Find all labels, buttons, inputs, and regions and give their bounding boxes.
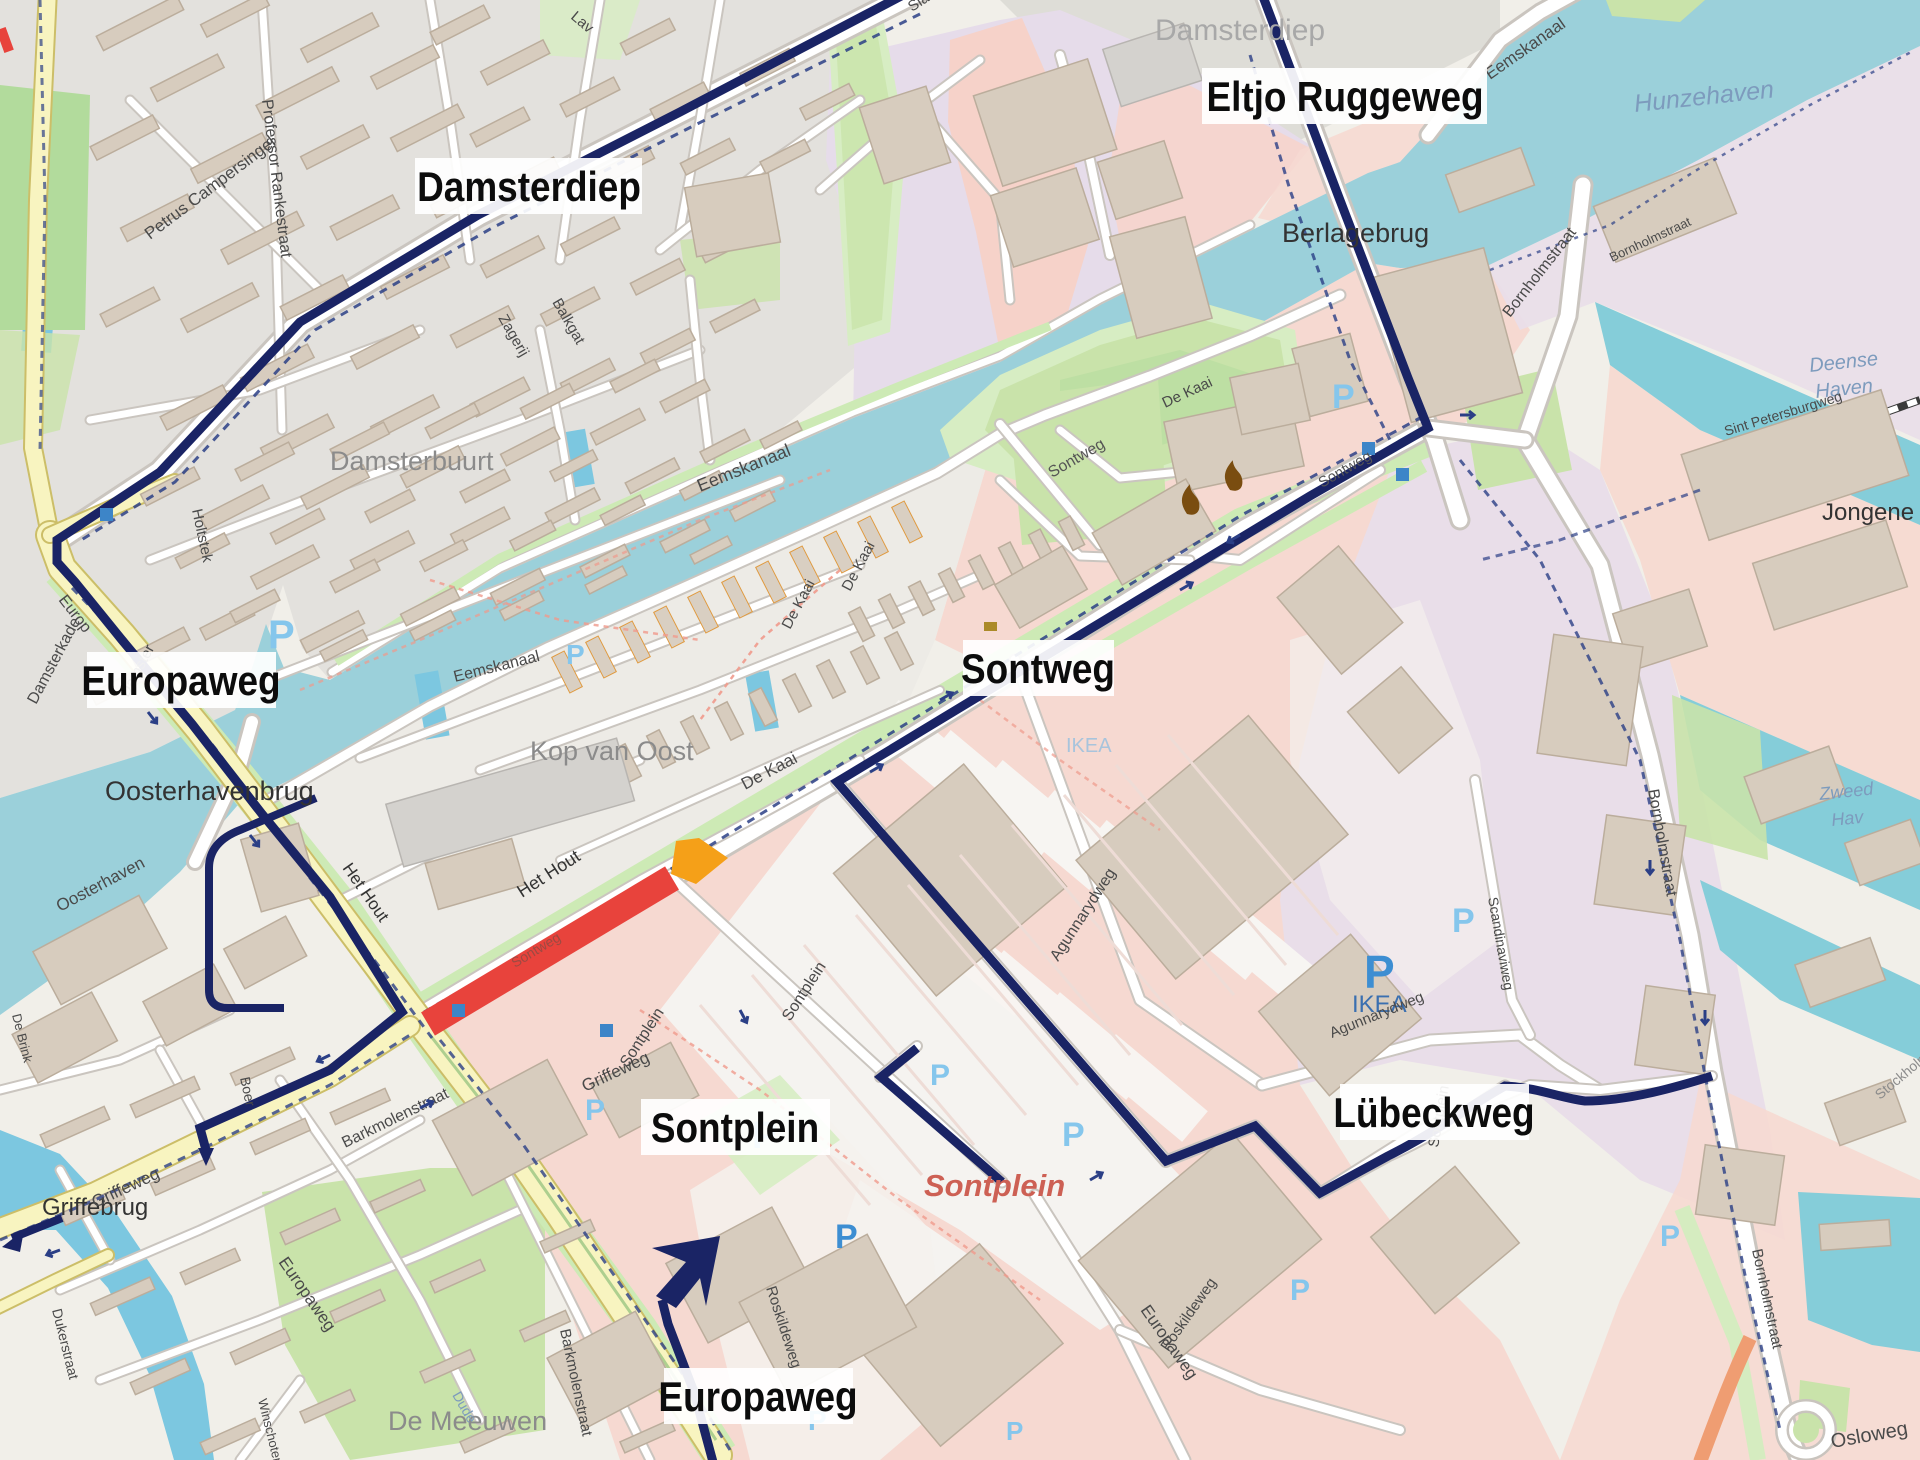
svg-text:P: P	[1332, 378, 1355, 416]
svg-text:Oosterhavenbrug: Oosterhavenbrug	[105, 776, 314, 806]
svg-text:Jongene: Jongene	[1822, 499, 1914, 526]
svg-text:P: P	[585, 1094, 605, 1127]
svg-text:Damsterbuurt: Damsterbuurt	[330, 446, 494, 476]
svg-text:Sontplein: Sontplein	[651, 1105, 819, 1152]
svg-text:Sontweg: Sontweg	[961, 646, 1115, 693]
svg-text:P: P	[1062, 1116, 1085, 1154]
svg-text:Damsterdiep: Damsterdiep	[1155, 14, 1325, 47]
svg-text:P: P	[1290, 1274, 1310, 1307]
svg-text:Europaweg: Europaweg	[658, 1374, 857, 1421]
svg-text:Hav: Hav	[1830, 807, 1865, 830]
svg-text:P: P	[1006, 1416, 1023, 1446]
svg-text:Kop van Oost: Kop van Oost	[530, 736, 694, 766]
svg-text:Europaweg: Europaweg	[81, 658, 280, 705]
svg-text:P: P	[930, 1059, 950, 1092]
svg-text:P: P	[268, 613, 295, 657]
svg-text:P: P	[1452, 902, 1475, 940]
svg-text:P: P	[566, 639, 585, 670]
svg-text:IKEA: IKEA	[1066, 735, 1112, 757]
svg-text:Damsterdiep: Damsterdiep	[417, 164, 641, 211]
svg-text:Eltjo Ruggeweg: Eltjo Ruggeweg	[1206, 74, 1483, 121]
svg-text:P: P	[835, 1218, 858, 1256]
svg-text:Lübeckweg: Lübeckweg	[1333, 1090, 1534, 1137]
svg-text:P: P	[1660, 1220, 1680, 1253]
svg-text:Sontplein: Sontplein	[924, 1168, 1065, 1203]
svg-text:Berlagebrug: Berlagebrug	[1282, 218, 1429, 248]
